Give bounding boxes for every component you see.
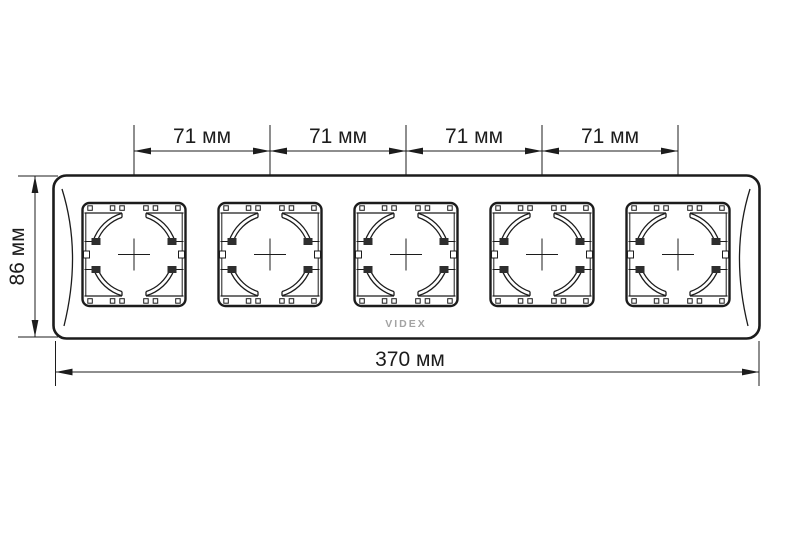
dimension-bottom: 370 мм xyxy=(56,341,760,386)
dimension-label-top-3: 71 мм xyxy=(445,125,503,148)
dimension-label-bottom: 370 мм xyxy=(375,348,445,371)
gang-opening-4 xyxy=(491,203,594,306)
drawing-canvas: VIDEX 71 мм 71 мм 71 мм 71 мм 86 мм 370 … xyxy=(0,0,800,533)
gang-opening-2 xyxy=(219,203,322,306)
technical-drawing: VIDEX 71 мм 71 мм 71 мм 71 мм 86 мм 370 … xyxy=(0,0,800,533)
dimension-left: 86 мм xyxy=(6,176,58,337)
dimension-label-top-1: 71 мм xyxy=(173,125,231,148)
gang-opening-3 xyxy=(355,203,458,306)
dimension-label-top-2: 71 мм xyxy=(309,125,367,148)
dimension-label-left: 86 мм xyxy=(6,227,29,285)
dimension-label-top-4: 71 мм xyxy=(581,125,639,148)
frame-right-curve xyxy=(739,189,750,326)
gang-opening-1 xyxy=(83,203,186,306)
gang-opening-5 xyxy=(627,203,730,306)
frame-left-curve xyxy=(62,189,73,326)
brand-logo: VIDEX xyxy=(385,318,427,330)
dimension-top: 71 мм 71 мм 71 мм 71 мм xyxy=(134,125,678,175)
